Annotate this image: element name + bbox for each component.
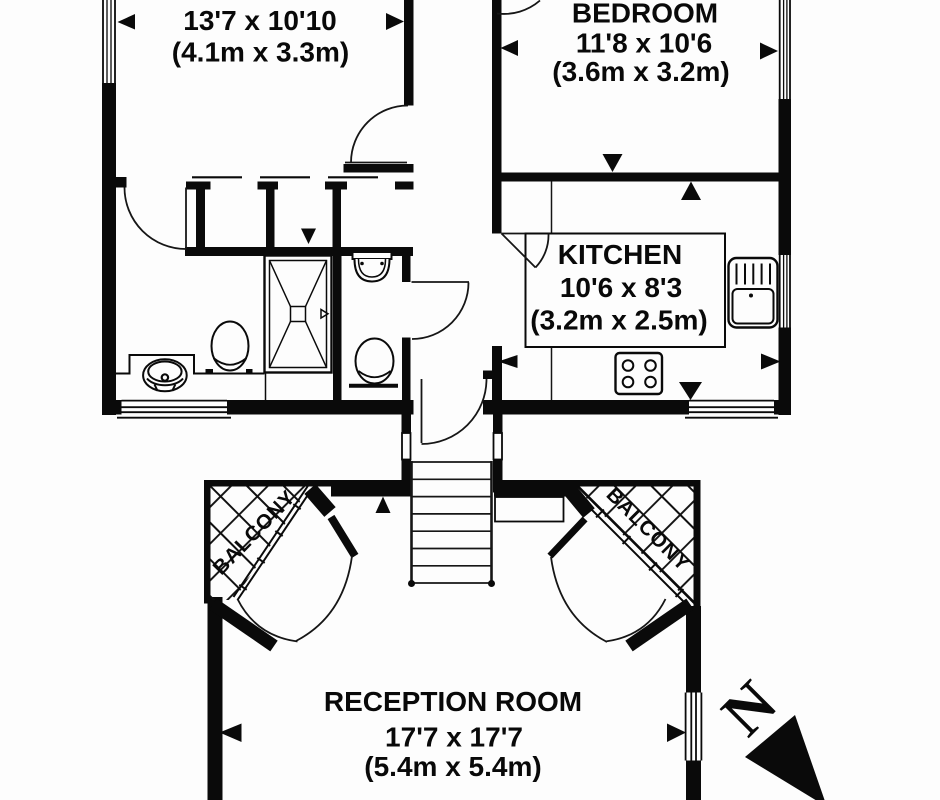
svg-text:KITCHEN: KITCHEN [558,239,682,270]
svg-text:(3.6m x 3.2m): (3.6m x 3.2m) [552,56,729,87]
svg-text:(4.1m x 3.3m): (4.1m x 3.3m) [172,37,349,68]
svg-text:17'7 x 17'7: 17'7 x 17'7 [385,722,523,753]
svg-text:13'7 x 10'10: 13'7 x 10'10 [183,5,336,36]
svg-text:RECEPTION ROOM: RECEPTION ROOM [324,686,582,717]
svg-text:11'8 x 10'6: 11'8 x 10'6 [576,28,712,59]
svg-text:(3.2m x 2.5m): (3.2m x 2.5m) [530,305,707,336]
svg-text:BEDROOM: BEDROOM [572,0,718,29]
svg-text:(5.4m x 5.4m): (5.4m x 5.4m) [364,751,541,782]
svg-text:10'6 x 8'3: 10'6 x 8'3 [560,272,682,303]
